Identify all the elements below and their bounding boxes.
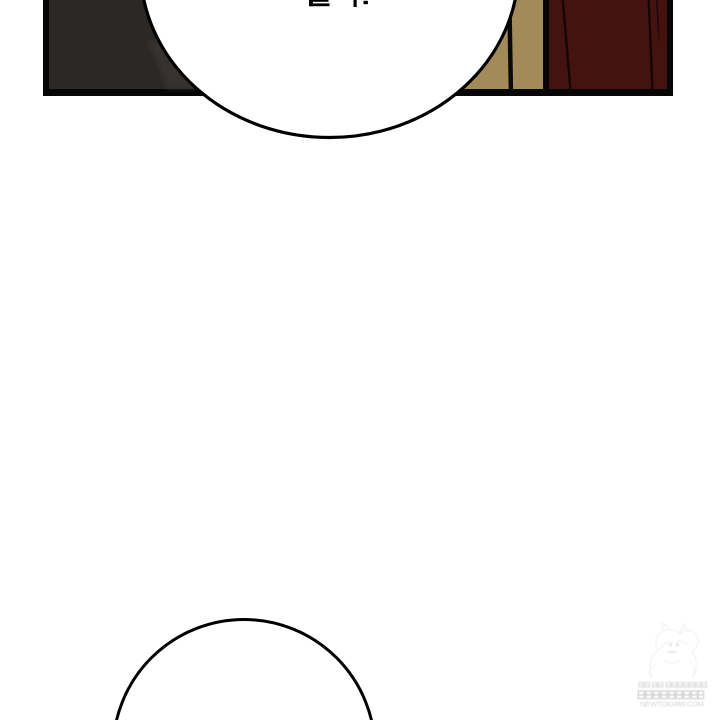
svg-text:NEWTOKI469.COM: NEWTOKI469.COM [640, 700, 704, 709]
